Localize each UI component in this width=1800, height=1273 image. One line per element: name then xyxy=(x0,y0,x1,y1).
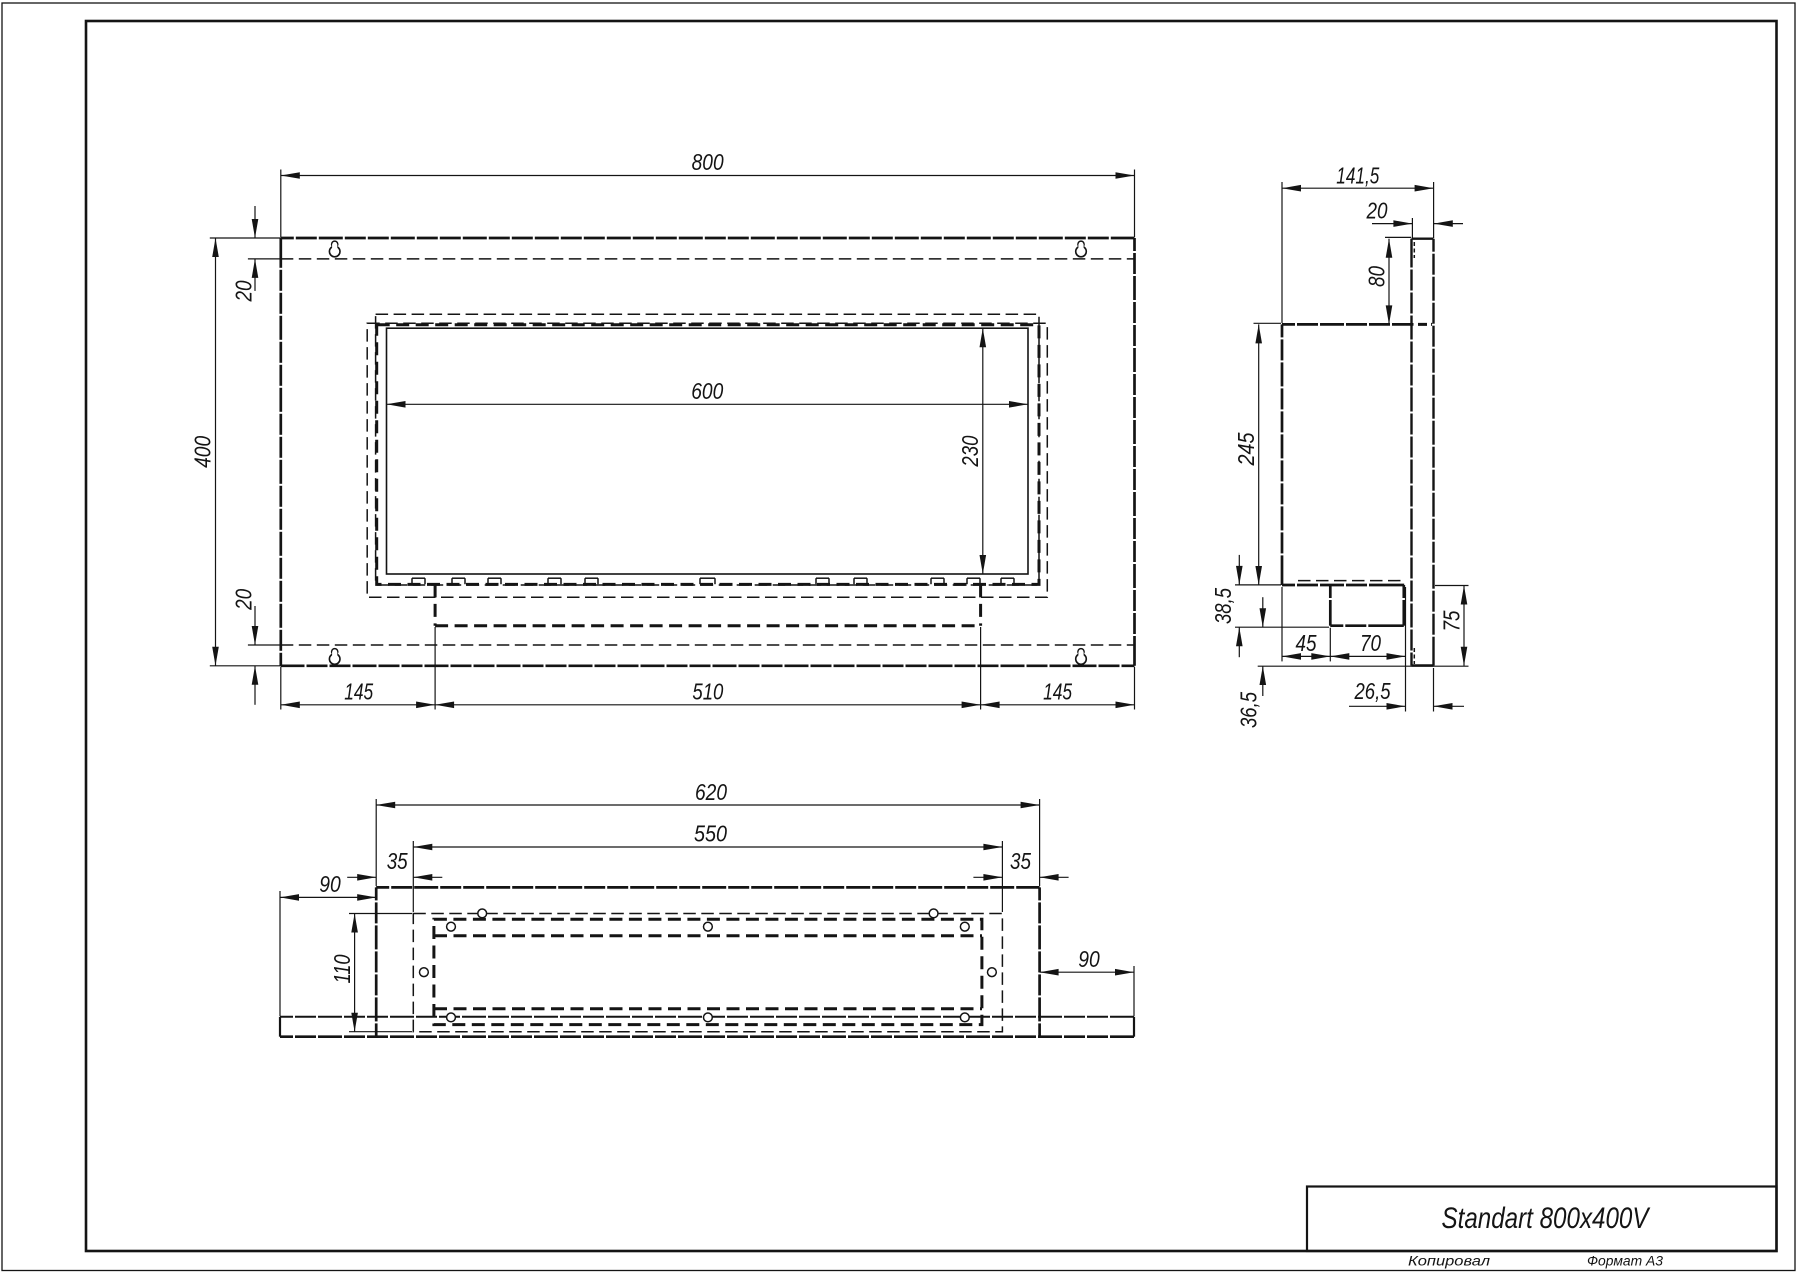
svg-text:38,5: 38,5 xyxy=(1210,588,1236,624)
svg-text:Копировал: Копировал xyxy=(1408,1254,1490,1269)
svg-text:36,5: 36,5 xyxy=(1236,692,1262,728)
svg-text:400: 400 xyxy=(190,436,216,468)
svg-text:245: 245 xyxy=(1233,432,1259,466)
svg-text:Формат А3: Формат А3 xyxy=(1587,1254,1663,1269)
svg-text:110: 110 xyxy=(329,954,355,983)
svg-text:20: 20 xyxy=(231,589,257,611)
svg-text:230: 230 xyxy=(957,435,983,467)
svg-text:20: 20 xyxy=(231,280,257,302)
svg-text:800: 800 xyxy=(692,149,724,175)
svg-text:145: 145 xyxy=(1043,678,1072,704)
svg-text:80: 80 xyxy=(1364,266,1390,287)
svg-text:90: 90 xyxy=(1078,946,1100,972)
svg-text:26,5: 26,5 xyxy=(1354,678,1391,704)
svg-text:35: 35 xyxy=(387,848,408,874)
svg-text:550: 550 xyxy=(694,821,727,847)
svg-text:45: 45 xyxy=(1296,630,1317,656)
svg-text:600: 600 xyxy=(691,378,723,404)
svg-text:70: 70 xyxy=(1360,630,1381,656)
svg-text:90: 90 xyxy=(319,871,341,897)
svg-text:75: 75 xyxy=(1439,610,1465,631)
svg-text:20: 20 xyxy=(1366,198,1388,224)
svg-text:620: 620 xyxy=(695,779,727,805)
svg-text:Standart 800x400V: Standart 800x400V xyxy=(1442,1202,1651,1235)
svg-text:145: 145 xyxy=(344,678,373,704)
svg-text:35: 35 xyxy=(1010,848,1031,874)
svg-text:510: 510 xyxy=(692,678,723,704)
svg-text:141,5: 141,5 xyxy=(1336,163,1379,189)
